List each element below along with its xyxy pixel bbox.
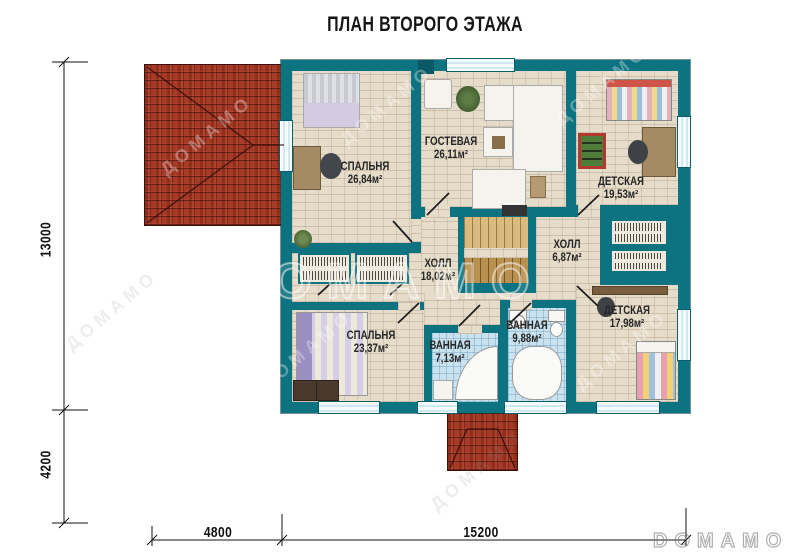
door-swing-lines bbox=[318, 193, 599, 326]
dimension-lines bbox=[52, 57, 691, 546]
plan-overlay-svg bbox=[0, 0, 800, 558]
roof-ridge-lines bbox=[147, 67, 515, 468]
floor-plan-page: ПЛАН ВТОРОГО ЭТАЖА bbox=[0, 0, 800, 558]
domamo-logo: DOMAMO bbox=[653, 530, 788, 553]
